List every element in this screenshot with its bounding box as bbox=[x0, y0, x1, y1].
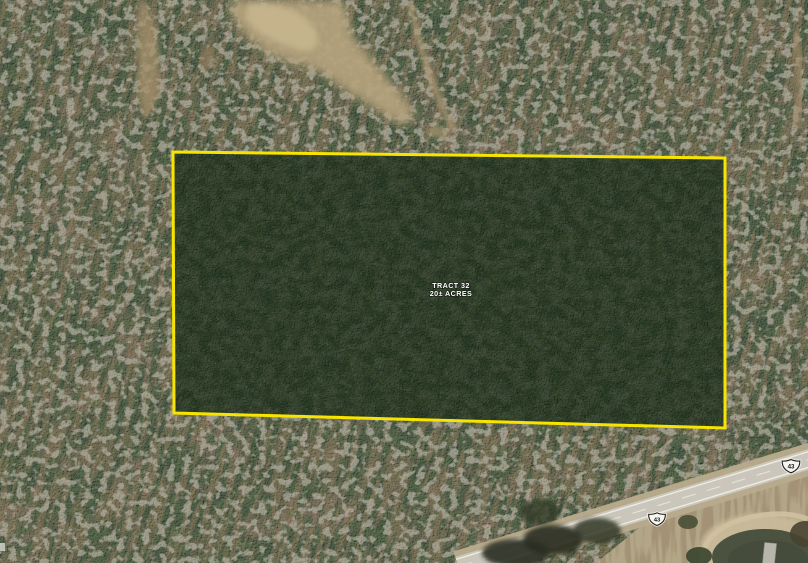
pond-bush bbox=[678, 515, 698, 529]
aerial-map: 43 43 TRACT 32 20± ACRES bbox=[0, 0, 808, 563]
pond-dock bbox=[762, 542, 776, 563]
route-number: 43 bbox=[788, 463, 795, 470]
us-route-shield: 43 bbox=[782, 460, 800, 473]
dirt-spot bbox=[428, 126, 448, 138]
tract-label-group: TRACT 32 20± ACRES bbox=[430, 281, 472, 298]
us-route-shield: 43 bbox=[649, 513, 666, 526]
edge-watermark-fragment bbox=[0, 543, 5, 551]
route-number: 43 bbox=[654, 517, 661, 523]
aerial-imagery-svg: 43 43 TRACT 32 20± ACRES bbox=[0, 0, 808, 563]
tract-acreage-label: 20± ACRES bbox=[430, 289, 472, 298]
dirt-spot bbox=[200, 46, 216, 70]
